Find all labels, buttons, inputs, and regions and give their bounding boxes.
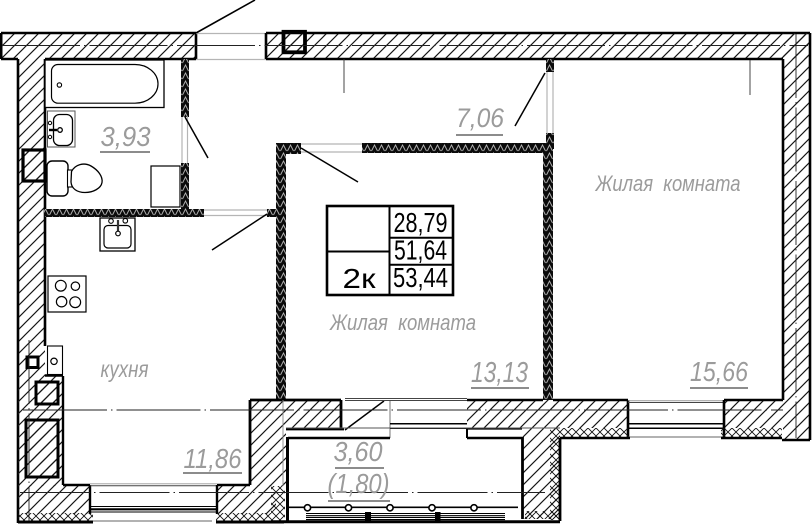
svg-text:51,64: 51,64: [394, 235, 447, 266]
svg-text:Жилая комната: Жилая комната: [595, 171, 741, 196]
svg-text:13,13: 13,13: [471, 357, 528, 389]
svg-text:11,86: 11,86: [184, 443, 242, 474]
svg-text:2к: 2к: [343, 263, 377, 294]
svg-text:7,06: 7,06: [456, 103, 505, 133]
svg-text:3,93: 3,93: [101, 121, 151, 152]
svg-text:(1,80): (1,80): [328, 468, 390, 499]
svg-text:53,44: 53,44: [393, 262, 448, 293]
svg-text:28,79: 28,79: [394, 207, 448, 238]
svg-text:3,60: 3,60: [334, 436, 383, 467]
svg-text:15,66: 15,66: [690, 356, 748, 387]
svg-text:Жилая комната: Жилая комната: [329, 310, 476, 335]
svg-text:кухня: кухня: [101, 356, 149, 382]
